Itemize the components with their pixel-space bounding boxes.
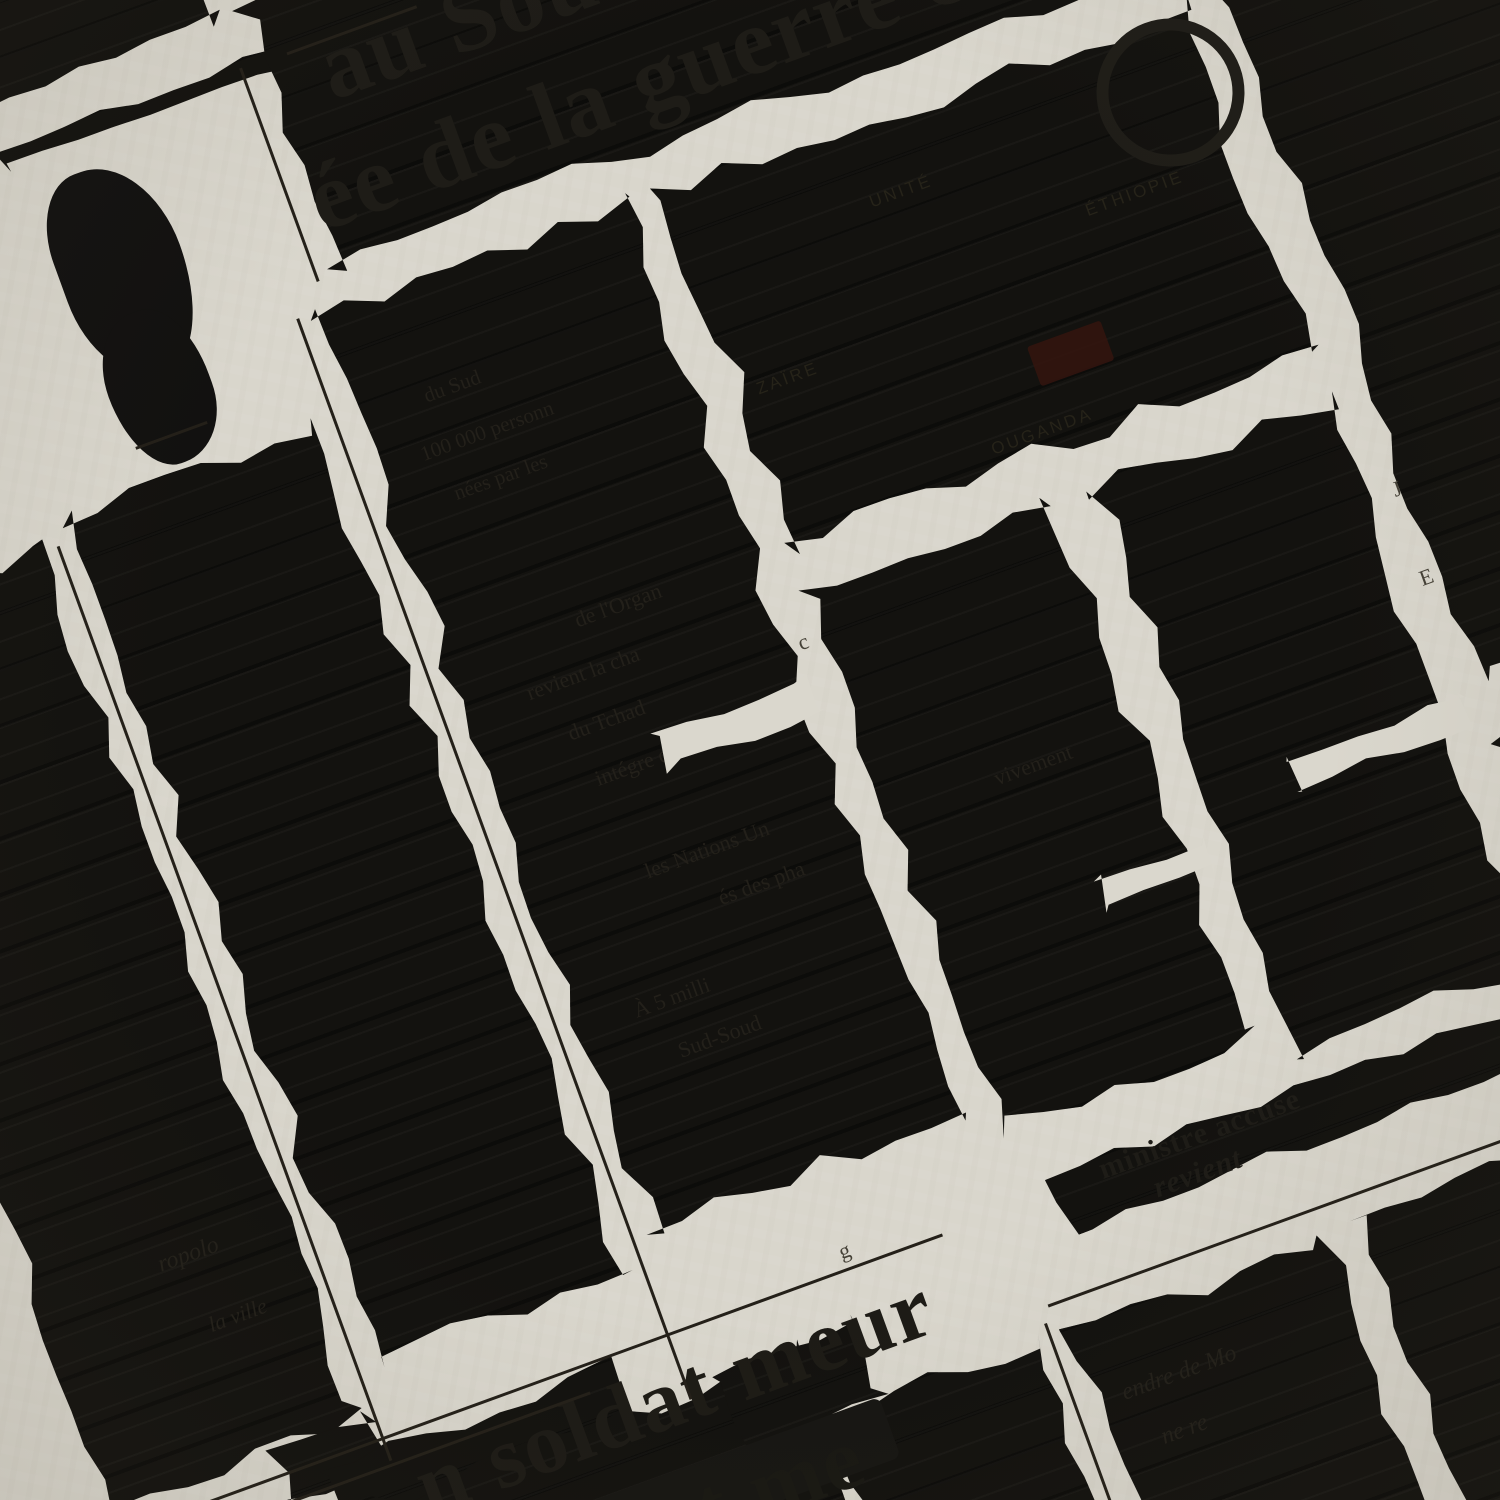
newspaper-page: au Soudan quée de la guerre civn soldat … (0, 0, 1500, 1500)
unredacted-letter: E (1416, 565, 1436, 590)
artwork-canvas: au Soudan quée de la guerre civn soldat … (0, 0, 1500, 1500)
unredacted-letter: g (836, 1239, 854, 1263)
unredacted-letter: c (795, 630, 812, 654)
